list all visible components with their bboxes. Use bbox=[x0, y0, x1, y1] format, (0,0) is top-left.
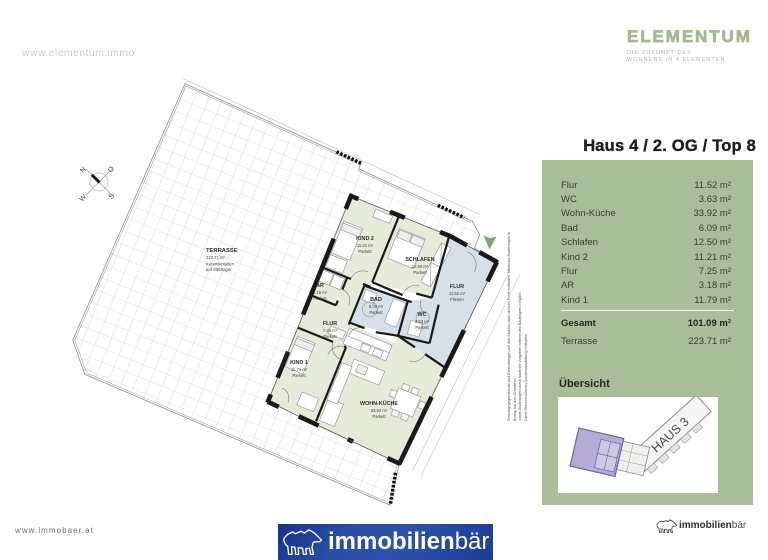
svg-text:Keramikplatten: Keramikplatten bbox=[206, 262, 235, 267]
svg-text:KIND 1: KIND 1 bbox=[290, 360, 308, 366]
svg-text:12.50 m²: 12.50 m² bbox=[412, 264, 429, 269]
svg-text:223.71 m²: 223.71 m² bbox=[206, 255, 225, 260]
svg-text:FLUR: FLUR bbox=[323, 321, 337, 327]
svg-text:11.52 m²: 11.52 m² bbox=[449, 291, 466, 296]
svg-text:33.92 m²: 33.92 m² bbox=[371, 408, 388, 413]
svg-text:3.18 m²: 3.18 m² bbox=[313, 290, 328, 295]
svg-text:TERRASSE: TERRASSE bbox=[206, 248, 238, 254]
svg-text:Parkett: Parkett bbox=[415, 325, 429, 330]
svg-text:N: N bbox=[79, 166, 88, 175]
svg-text:W: W bbox=[79, 193, 89, 203]
svg-text:Parkett: Parkett bbox=[292, 373, 306, 378]
svg-text:3.63 m²: 3.63 m² bbox=[415, 319, 430, 324]
svg-text:Fliesen: Fliesen bbox=[450, 297, 464, 302]
svg-text:SCHLAFEN: SCHLAFEN bbox=[405, 257, 434, 263]
svg-text:FLUR: FLUR bbox=[450, 284, 464, 290]
svg-text:AR: AR bbox=[316, 283, 324, 289]
svg-text:WC: WC bbox=[418, 312, 427, 318]
svg-text:11.79 m²: 11.79 m² bbox=[291, 367, 308, 372]
svg-text:Parkett: Parkett bbox=[313, 296, 327, 301]
svg-text:Parkett: Parkett bbox=[369, 310, 383, 315]
svg-text:7.25 m²: 7.25 m² bbox=[323, 328, 338, 333]
svg-text:Parkett: Parkett bbox=[413, 270, 427, 275]
svg-text:S: S bbox=[108, 193, 116, 201]
svg-text:6.09 m²: 6.09 m² bbox=[369, 304, 384, 309]
svg-text:11.21 m²: 11.21 m² bbox=[357, 243, 374, 248]
svg-text:auf Stelzlager: auf Stelzlager bbox=[206, 267, 232, 272]
svg-text:Parkett: Parkett bbox=[323, 334, 337, 339]
svg-text:Parkett: Parkett bbox=[372, 414, 386, 419]
svg-text:Parkett: Parkett bbox=[358, 249, 372, 254]
svg-text:KIND 2: KIND 2 bbox=[356, 236, 374, 242]
svg-text:WOHN-KÜCHE: WOHN-KÜCHE bbox=[360, 400, 398, 407]
svg-text:BAD: BAD bbox=[370, 297, 382, 303]
